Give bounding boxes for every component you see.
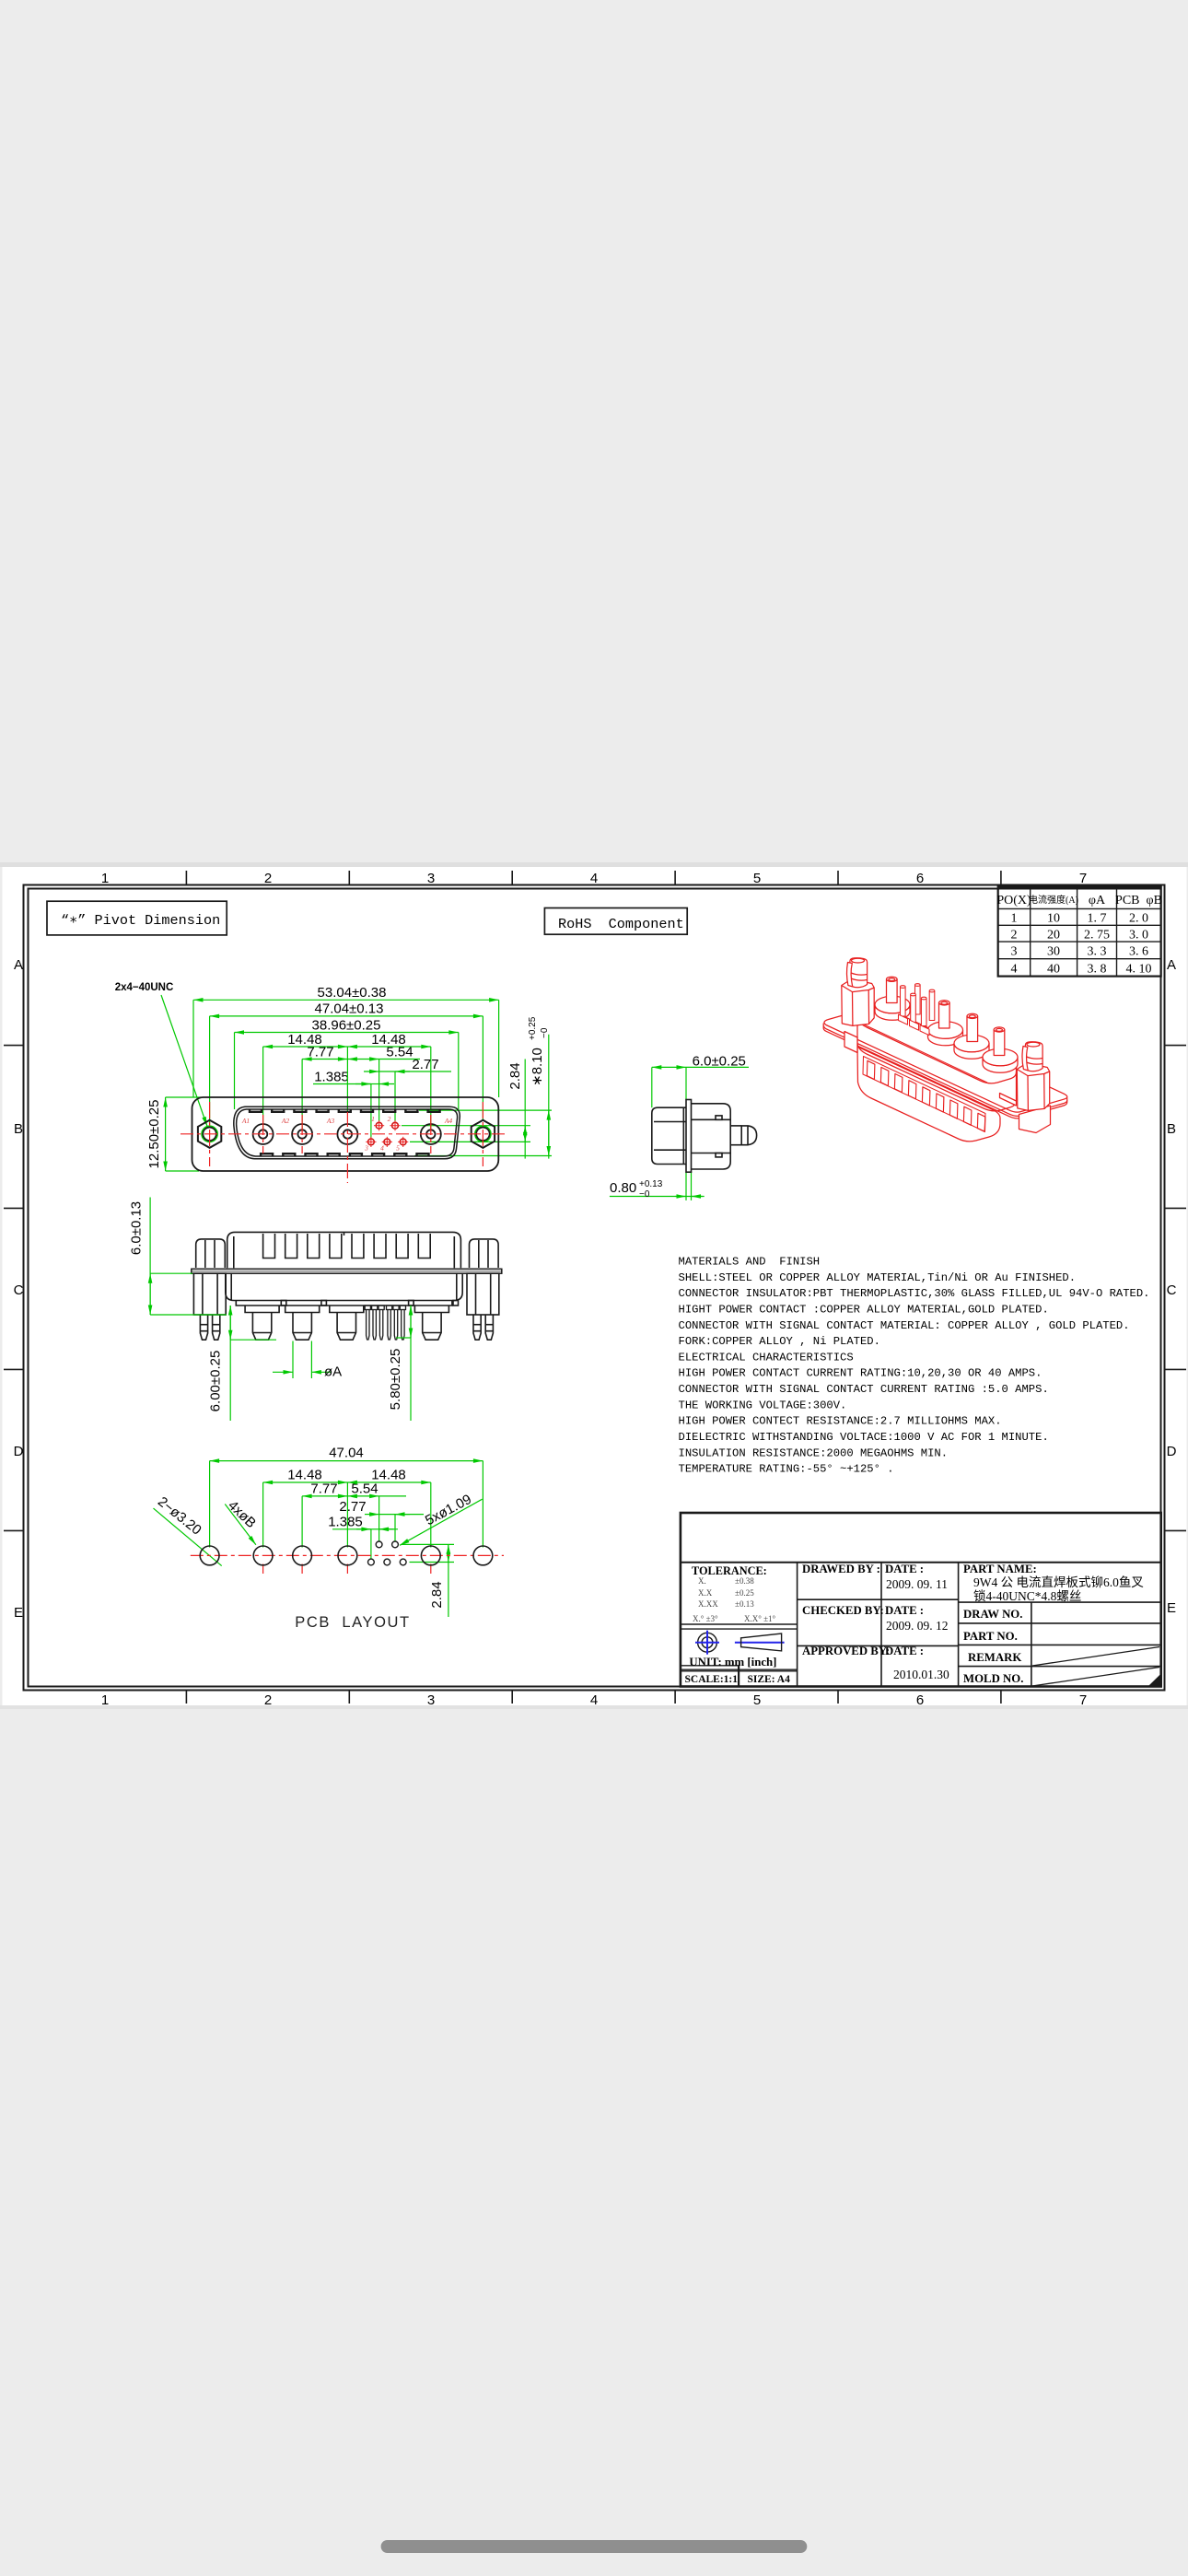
svg-text:CHECKED BY:: CHECKED BY: [802, 1604, 884, 1617]
svg-text:X.X° ±1°: X.X° ±1° [744, 1614, 776, 1623]
svg-text:12.50±0.25: 12.50±0.25 [146, 1100, 162, 1169]
svg-text:1: 1 [101, 871, 109, 886]
svg-text:CONNECTOR INSULATOR:PBT THERMO: CONNECTOR INSULATOR:PBT THERMOPLASTIC,30… [679, 1287, 1150, 1300]
svg-text:−0: −0 [639, 1189, 650, 1200]
svg-text:X.° ±3°: X.° ±3° [693, 1614, 718, 1623]
svg-text:D: D [1167, 1444, 1177, 1459]
svg-text:A4: A4 [444, 1117, 453, 1125]
svg-text:DATE :: DATE : [885, 1604, 924, 1617]
svg-text:5: 5 [753, 871, 761, 886]
svg-text:40: 40 [1047, 963, 1060, 977]
svg-text:0.80: 0.80 [610, 1180, 636, 1196]
svg-text:MOLD NO.: MOLD NO. [963, 1672, 1023, 1685]
svg-text:1: 1 [101, 1692, 109, 1708]
svg-text:5: 5 [396, 1144, 400, 1153]
svg-text:PCB LAYOUT: PCB LAYOUT [295, 1614, 411, 1631]
svg-text:THE WORKING VOLTAGE:300V.: THE WORKING VOLTAGE:300V. [679, 1399, 847, 1411]
svg-text:47.04±0.13: 47.04±0.13 [315, 1001, 384, 1017]
svg-text:RoHS Component: RoHS Component [558, 916, 684, 932]
svg-text:SCALE:1:1: SCALE:1:1 [685, 1674, 739, 1685]
svg-text:A3: A3 [326, 1117, 335, 1125]
svg-text:1.385: 1.385 [314, 1070, 349, 1085]
svg-text:30: 30 [1047, 945, 1060, 959]
svg-text:+0.13: +0.13 [639, 1179, 663, 1189]
svg-text:3: 3 [427, 871, 435, 886]
svg-text:MATERIALS AND FINISH: MATERIALS AND FINISH [679, 1256, 821, 1269]
svg-text:6.0±0.13: 6.0±0.13 [129, 1201, 145, 1255]
svg-text:3. 0: 3. 0 [1129, 929, 1148, 943]
svg-text:FORK:COPPER ALLOY , Ni PLATED.: FORK:COPPER ALLOY , Ni PLATED. [679, 1335, 880, 1348]
svg-text:HIGH POWER CONTACT CURRENT RAT: HIGH POWER CONTACT CURRENT RATING:10,20,… [679, 1367, 1042, 1380]
svg-text:φA: φA [1089, 894, 1106, 907]
svg-text:3. 3: 3. 3 [1088, 945, 1107, 959]
svg-text:1. 7: 1. 7 [1088, 912, 1107, 926]
svg-text:4. 10: 4. 10 [1126, 963, 1152, 977]
svg-text:SHELL:STEEL OR COPPER ALLOY MA: SHELL:STEEL OR COPPER ALLOY MATERIAL,Tin… [679, 1271, 1077, 1284]
svg-text:±0.13: ±0.13 [735, 1599, 754, 1609]
svg-text:A: A [1167, 957, 1176, 973]
svg-text:E: E [1167, 1600, 1176, 1616]
svg-text:“∗” Pivot Dimension: “∗” Pivot Dimension [61, 912, 220, 929]
svg-text:6: 6 [916, 871, 924, 886]
svg-text:1: 1 [371, 1115, 375, 1123]
svg-text:TOLERANCE:: TOLERANCE: [692, 1564, 767, 1577]
svg-text:HIGHT POWER CONTACT :COPPER AL: HIGHT POWER CONTACT :COPPER ALLOY MATERI… [679, 1303, 1049, 1316]
svg-text:4: 4 [380, 1144, 384, 1153]
svg-text:A1: A1 [241, 1117, 250, 1125]
svg-text:7: 7 [1079, 871, 1087, 886]
svg-text:2009. 09. 12: 2009. 09. 12 [886, 1619, 949, 1633]
svg-text:A: A [14, 957, 23, 973]
svg-text:2: 2 [264, 1692, 272, 1708]
svg-text:2x4−40UNC: 2x4−40UNC [115, 982, 174, 993]
svg-text:4: 4 [590, 1692, 598, 1708]
svg-text:1: 1 [1011, 912, 1018, 926]
svg-text:2. 0: 2. 0 [1129, 912, 1148, 926]
svg-text:2009. 09. 11: 2009. 09. 11 [886, 1577, 948, 1591]
svg-text:锁4-40UNC*4.8螺丝: 锁4-40UNC*4.8螺丝 [973, 1589, 1081, 1603]
svg-text:CONNECTOR WITH SIGNAL CONTACT: CONNECTOR WITH SIGNAL CONTACT CURRENT RA… [679, 1383, 1049, 1396]
svg-text:电流强度(A): 电流强度(A) [1029, 894, 1078, 906]
svg-text:47.04: 47.04 [329, 1446, 364, 1461]
svg-text:INSULATION RESISTANCE:2000 MEG: INSULATION RESISTANCE:2000 MEGAOHMS MIN. [679, 1446, 949, 1459]
svg-text:3: 3 [427, 1692, 435, 1708]
svg-text:HIGH POWER CONTECT RESISTANCE:: HIGH POWER CONTECT RESISTANCE:2.7 MILLIO… [679, 1415, 1002, 1428]
svg-text:PCB φB: PCB φB [1115, 894, 1162, 907]
svg-text:+0.25: +0.25 [528, 1016, 538, 1040]
svg-text:X.: X. [698, 1576, 706, 1586]
svg-text:6: 6 [916, 1692, 924, 1708]
svg-text:9W4 公 电流直焊板式铆6.0鱼叉: 9W4 公 电流直焊板式铆6.0鱼叉 [973, 1575, 1144, 1589]
svg-text:1.385: 1.385 [328, 1514, 363, 1529]
svg-text:PART NO.: PART NO. [963, 1630, 1018, 1643]
svg-text:7.77: 7.77 [310, 1481, 337, 1496]
svg-text:3. 8: 3. 8 [1088, 963, 1107, 977]
svg-text:D: D [14, 1444, 24, 1459]
svg-text:3: 3 [1011, 945, 1018, 959]
svg-text:53.04±0.38: 53.04±0.38 [318, 985, 387, 1001]
svg-text:X.X: X.X [698, 1588, 713, 1598]
svg-text:3: 3 [364, 1144, 368, 1153]
svg-text:PO(X): PO(X) [996, 894, 1031, 907]
svg-text:2: 2 [264, 871, 272, 886]
svg-text:7: 7 [1079, 1692, 1087, 1708]
svg-text:TEMPERATURE RATING:-55° ~+125°: TEMPERATURE RATING:-55° ~+125° . [679, 1463, 894, 1476]
svg-text:DATE :: DATE : [885, 1563, 924, 1575]
svg-text:C: C [14, 1282, 24, 1298]
svg-text:UNIT: mm [inch]: UNIT: mm [inch] [689, 1656, 776, 1669]
svg-text:øA: øA [324, 1364, 342, 1380]
svg-text:2: 2 [1011, 929, 1018, 943]
svg-text:DRAW NO.: DRAW NO. [963, 1608, 1022, 1621]
svg-text:5: 5 [753, 1692, 761, 1708]
svg-text:2. 75: 2. 75 [1084, 929, 1110, 943]
svg-text:C: C [1167, 1282, 1177, 1298]
svg-text:DIELECTRIC WITHSTANDING VOLTAC: DIELECTRIC WITHSTANDING VOLTACE:1000 V A… [679, 1431, 1049, 1444]
svg-text:DATE :: DATE : [885, 1645, 924, 1657]
svg-text:SIZE: A4: SIZE: A4 [748, 1674, 791, 1685]
svg-text:3. 6: 3. 6 [1129, 945, 1148, 959]
svg-text:PART NAME:: PART NAME: [963, 1563, 1037, 1575]
svg-text:5.54: 5.54 [351, 1481, 378, 1496]
svg-text:ELECTRICAL CHARACTERISTICS: ELECTRICAL CHARACTERISTICS [679, 1351, 854, 1364]
svg-text:2010.01.30: 2010.01.30 [893, 1668, 949, 1681]
svg-text:38.96±0.25: 38.96±0.25 [312, 1017, 381, 1033]
svg-text:5.80±0.25: 5.80±0.25 [388, 1349, 403, 1411]
svg-text:2.77: 2.77 [339, 1499, 366, 1515]
svg-text:2.84: 2.84 [429, 1581, 445, 1608]
svg-text:B: B [14, 1121, 23, 1137]
svg-text:REMARK: REMARK [968, 1651, 1021, 1664]
svg-text:CONNECTOR WITH SIGNAL CONTACT: CONNECTOR WITH SIGNAL CONTACT MATERIAL: … [679, 1319, 1130, 1332]
svg-text:B: B [1167, 1121, 1176, 1137]
svg-text:20: 20 [1047, 929, 1060, 943]
svg-text:4: 4 [1011, 963, 1018, 977]
svg-text:E: E [14, 1605, 23, 1621]
svg-text:X.XX: X.XX [698, 1599, 718, 1609]
svg-text:4: 4 [590, 871, 598, 886]
svg-text:A2: A2 [281, 1117, 290, 1125]
svg-text:±0.25: ±0.25 [735, 1588, 754, 1598]
svg-text:∗8.10: ∗8.10 [530, 1048, 545, 1086]
svg-text:6.00±0.25: 6.00±0.25 [208, 1351, 224, 1412]
svg-text:DRAWED BY :: DRAWED BY : [802, 1563, 880, 1575]
svg-text:2.84: 2.84 [507, 1062, 523, 1089]
svg-text:10: 10 [1047, 912, 1060, 926]
svg-text:±0.38: ±0.38 [735, 1576, 754, 1586]
svg-text:2: 2 [388, 1115, 391, 1123]
svg-text:APPROVED BY:: APPROVED BY: [802, 1645, 890, 1657]
